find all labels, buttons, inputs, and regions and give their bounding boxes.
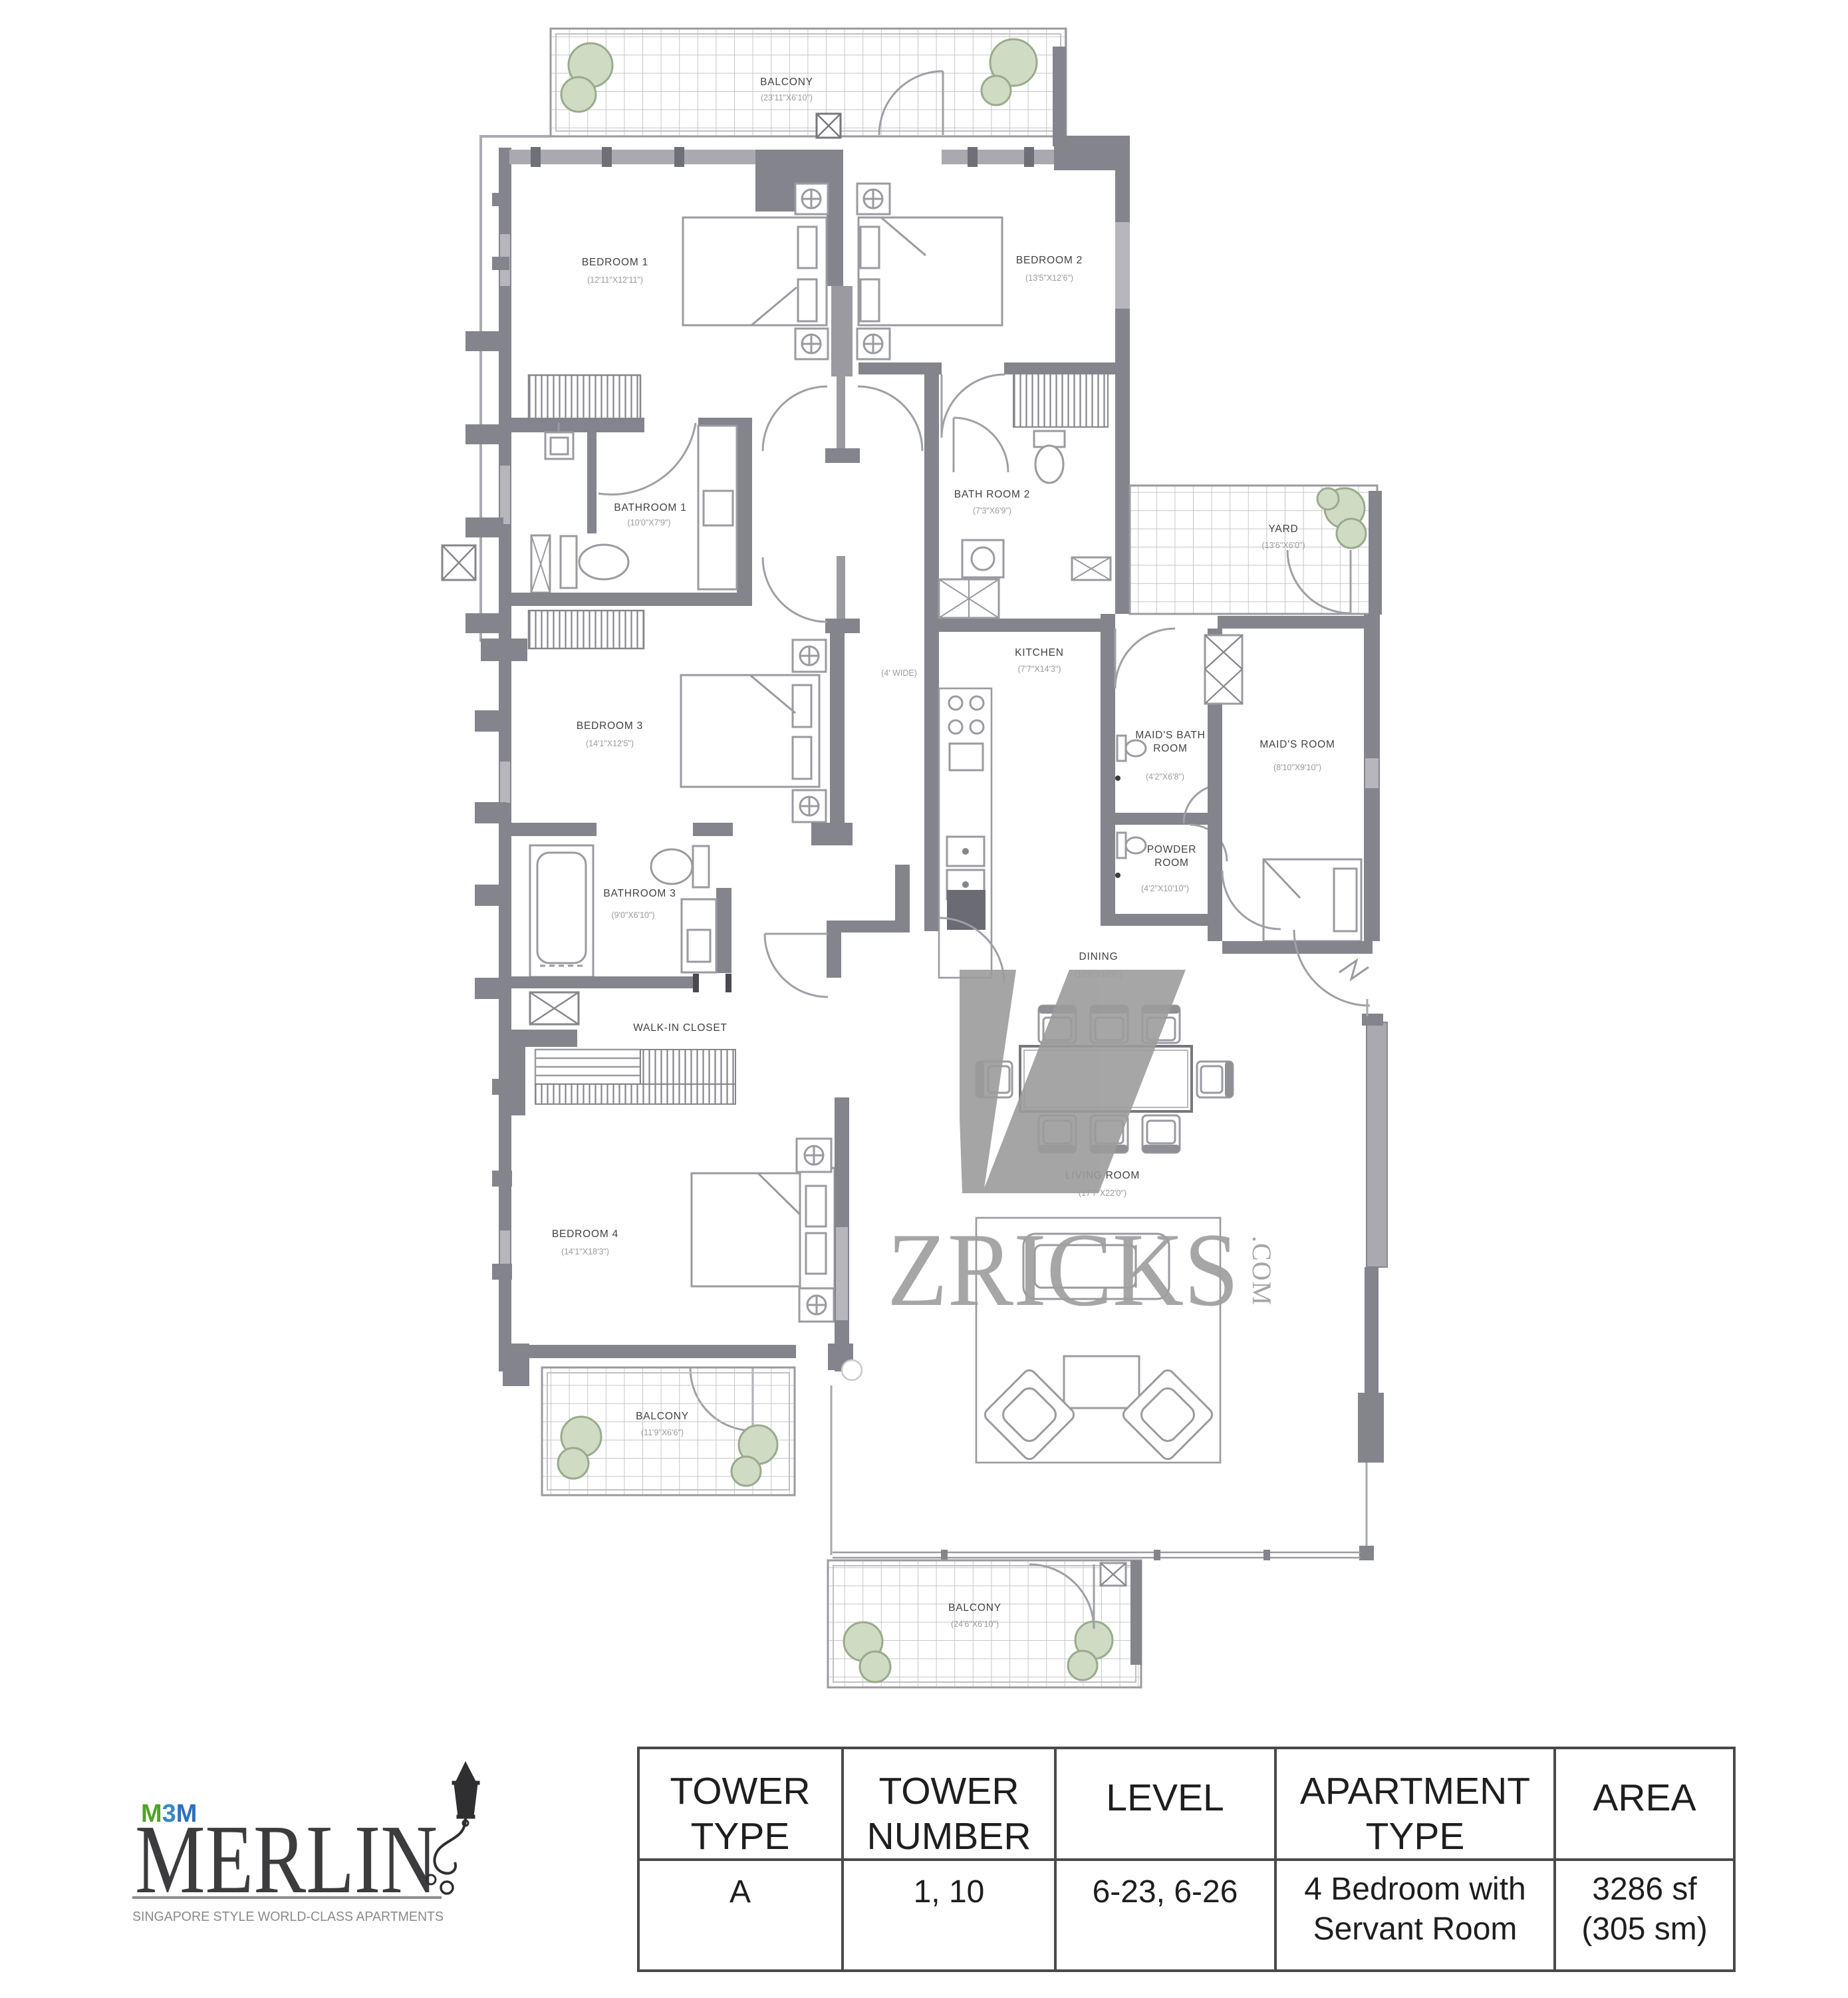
- svg-text:BALCONY: BALCONY: [948, 1602, 1001, 1614]
- svg-text:ROOM: ROOM: [1153, 743, 1187, 754]
- svg-text:MAID'S ROOM: MAID'S ROOM: [1259, 739, 1335, 750]
- svg-text:(4' WIDE): (4' WIDE): [881, 668, 917, 678]
- svg-text:POWDER: POWDER: [1147, 844, 1197, 855]
- svg-text:YARD: YARD: [1268, 523, 1298, 535]
- svg-text:BATH ROOM 2: BATH ROOM 2: [954, 489, 1030, 500]
- svg-text:TYPE: TYPE: [691, 1815, 790, 1858]
- svg-text:TYPE: TYPE: [1366, 1815, 1465, 1858]
- svg-text:Servant Room: Servant Room: [1313, 1912, 1518, 1947]
- svg-text:(8'10"X9'10"): (8'10"X9'10"): [1273, 763, 1321, 772]
- svg-text:(13'5"X12'6"): (13'5"X12'6"): [1025, 273, 1073, 283]
- svg-text:SINGAPORE STYLE WORLD-CLASS AP: SINGAPORE STYLE WORLD-CLASS APARTMENTS: [132, 1910, 444, 1924]
- svg-text:TOWER: TOWER: [878, 1770, 1019, 1812]
- svg-text:(7'3"X6'9"): (7'3"X6'9"): [973, 506, 1011, 515]
- svg-text:(23'11"X6'10"): (23'11"X6'10"): [761, 93, 813, 102]
- svg-text:NUMBER: NUMBER: [866, 1815, 1031, 1858]
- svg-text:3286 sf: 3286 sf: [1592, 1872, 1697, 1907]
- svg-text:MAID'S BATH: MAID'S BATH: [1135, 730, 1205, 741]
- svg-text:BALCONY: BALCONY: [760, 76, 813, 88]
- svg-text:ZRICKS: ZRICKS: [887, 1212, 1239, 1328]
- svg-text:BATHROOM 1: BATHROOM 1: [614, 502, 686, 513]
- svg-text:AREA: AREA: [1593, 1777, 1696, 1819]
- svg-text:(305 sm): (305 sm): [1581, 1912, 1707, 1947]
- svg-text:(14'1"X12'5"): (14'1"X12'5"): [586, 739, 634, 748]
- svg-text:LEVEL: LEVEL: [1106, 1777, 1224, 1819]
- svg-text:(12'11"X12'11"): (12'11"X12'11"): [587, 275, 643, 285]
- svg-text:DINING: DINING: [1079, 951, 1118, 962]
- svg-text:BEDROOM 1: BEDROOM 1: [582, 257, 648, 268]
- svg-text:6-23, 6-26: 6-23, 6-26: [1093, 1874, 1238, 1910]
- svg-text:WALK-IN CLOSET: WALK-IN CLOSET: [633, 1022, 727, 1034]
- svg-text:(11'9"X6'6"): (11'9"X6'6"): [641, 1428, 684, 1437]
- svg-text:ROOM: ROOM: [1154, 857, 1188, 869]
- svg-text:BEDROOM 4: BEDROOM 4: [552, 1228, 618, 1240]
- svg-text:.COM: .COM: [1247, 1236, 1277, 1306]
- svg-text:(24'6"X6'10"): (24'6"X6'10"): [951, 1620, 999, 1629]
- svg-text:KITCHEN: KITCHEN: [1015, 647, 1064, 658]
- svg-text:(9'0"X6'10"): (9'0"X6'10"): [611, 911, 654, 920]
- svg-text:(4'2"X6'8"): (4'2"X6'8"): [1146, 772, 1184, 782]
- svg-text:(7'7"X14'3"): (7'7"X14'3"): [1017, 664, 1061, 674]
- svg-text:(10'0"X7'9"): (10'0"X7'9"): [627, 518, 670, 527]
- svg-text:APARTMENT: APARTMENT: [1300, 1770, 1530, 1812]
- svg-text:TOWER: TOWER: [670, 1770, 810, 1812]
- svg-text:(4'2"X10'10"): (4'2"X10'10"): [1141, 884, 1189, 893]
- svg-text:BEDROOM 2: BEDROOM 2: [1016, 255, 1083, 266]
- svg-text:BEDROOM 3: BEDROOM 3: [577, 720, 643, 732]
- svg-text:BATHROOM 3: BATHROOM 3: [603, 888, 676, 899]
- svg-text:BALCONY: BALCONY: [636, 1411, 689, 1422]
- svg-text:1, 10: 1, 10: [914, 1874, 985, 1910]
- svg-text:(13'6"X6'0"): (13'6"X6'0"): [1261, 541, 1305, 550]
- svg-text:(14'1"X18'3"): (14'1"X18'3"): [561, 1247, 609, 1256]
- svg-text:A: A: [729, 1874, 751, 1910]
- svg-text:4 Bedroom with: 4 Bedroom with: [1304, 1872, 1526, 1907]
